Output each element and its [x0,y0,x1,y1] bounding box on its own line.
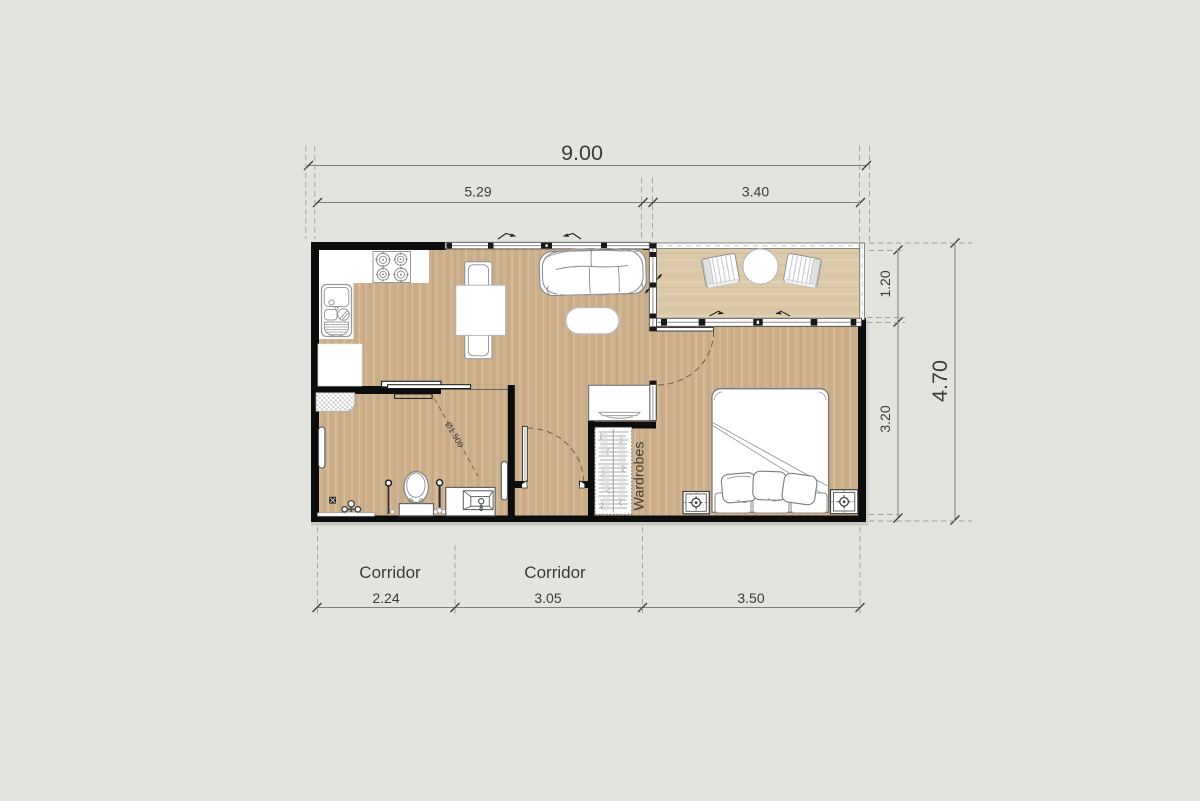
svg-text:3.50: 3.50 [737,590,764,606]
svg-text:3.05: 3.05 [534,590,561,606]
svg-text:3.20: 3.20 [877,405,893,432]
svg-text:2.24: 2.24 [372,590,399,606]
svg-text:Wardrobes: Wardrobes [632,442,648,511]
svg-text:3.40: 3.40 [742,184,769,200]
svg-text:5.29: 5.29 [464,184,491,200]
svg-text:Corridor: Corridor [359,563,421,582]
svg-text:4.70: 4.70 [928,360,952,402]
svg-text:1.20: 1.20 [877,270,893,297]
svg-text:9.00: 9.00 [561,141,603,165]
svg-text:Corridor: Corridor [524,563,586,582]
